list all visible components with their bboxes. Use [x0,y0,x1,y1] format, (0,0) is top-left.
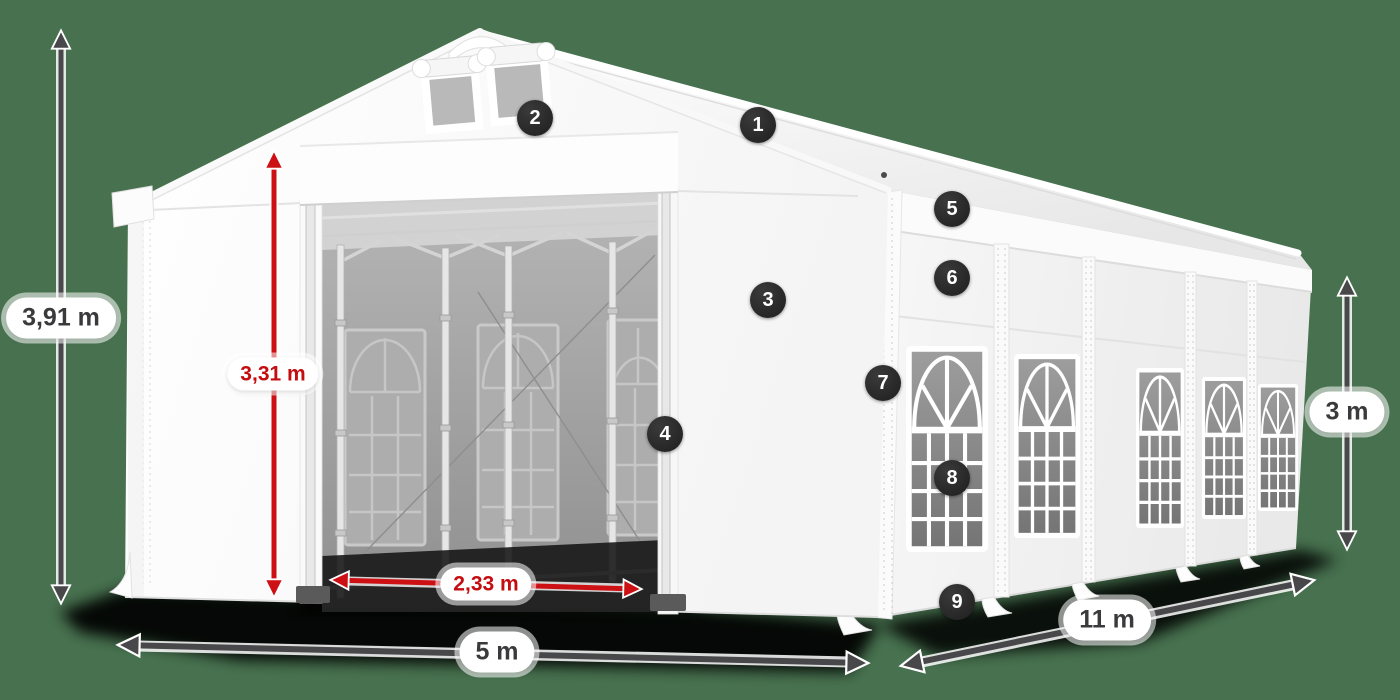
stage: 3,91 m 3,31 m 2,33 m 5 m 11 m 3 m 1 2 3 … [0,0,1400,700]
window-1 [906,346,988,552]
tent-illustration [0,0,1400,700]
callout-1[interactable]: 1 [740,107,776,143]
dimension-label-side-height: 3 m [1309,392,1384,433]
dimension-label-entrance-width: 2,33 m [440,568,531,601]
dimension-label-total-height: 3,91 m [6,298,116,339]
window-3 [1136,368,1184,528]
callout-2[interactable]: 2 [517,100,553,136]
callout-8[interactable]: 8 [934,460,970,496]
eave-anchor-dot [881,172,887,178]
callout-9[interactable]: 9 [939,584,975,620]
callout-7[interactable]: 7 [865,365,901,401]
callout-6[interactable]: 6 [934,260,970,296]
door-pole-left [306,205,315,595]
door-pole-right [662,192,670,602]
callout-5[interactable]: 5 [934,191,970,227]
dimension-label-front-width: 5 m [459,632,534,673]
dimension-label-entrance-height: 3,31 m [227,358,318,391]
callout-3[interactable]: 3 [750,282,786,318]
tent [110,32,1312,635]
callout-4[interactable]: 4 [647,416,683,452]
window-2 [1014,354,1080,538]
door-foot-left [296,586,330,603]
dimension-label-side-length: 11 m [1063,600,1151,641]
door-foot-right [650,594,686,611]
window-5 [1258,384,1298,511]
entrance-interior [322,190,670,612]
window-4 [1202,377,1246,519]
